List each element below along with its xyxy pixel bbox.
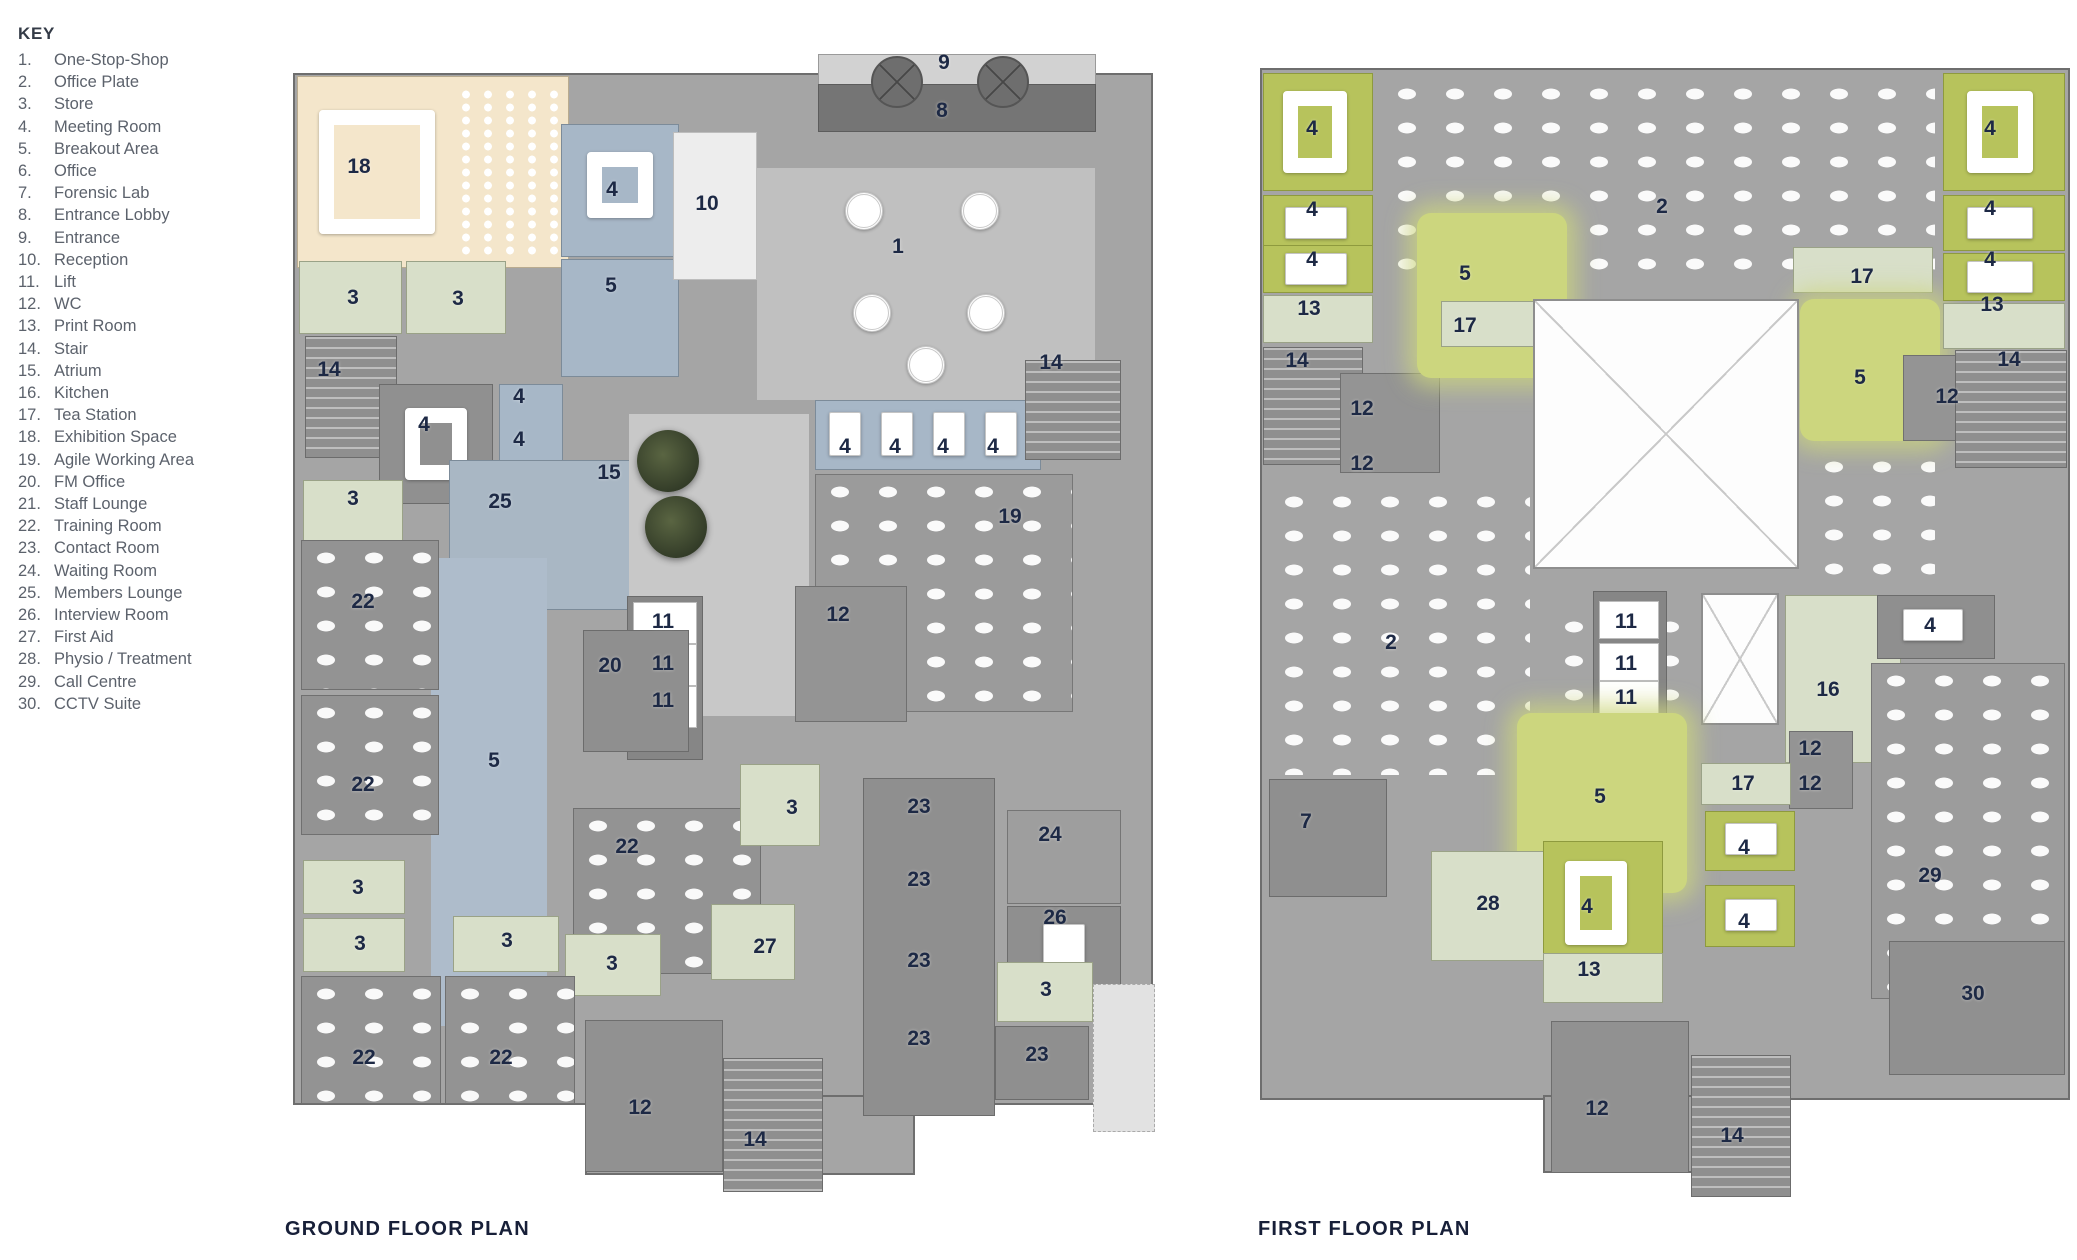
room-number-label: 12 bbox=[628, 1096, 651, 1120]
key-item-label: CCTV Suite bbox=[54, 693, 268, 715]
room-number-label: 12 bbox=[826, 603, 849, 627]
key-item-label: First Aid bbox=[54, 626, 268, 648]
room-number-label: 22 bbox=[351, 773, 374, 797]
room-number-label: 1 bbox=[892, 235, 904, 259]
room-number-label: 14 bbox=[1285, 349, 1308, 373]
room-number-label: 17 bbox=[1731, 772, 1754, 796]
room-number-label: 30 bbox=[1961, 982, 1984, 1006]
key-item-label: Office Plate bbox=[54, 71, 268, 93]
room-number-label: 9 bbox=[938, 51, 950, 75]
key-item: 17.Tea Station bbox=[18, 404, 268, 426]
room-number-label: 29 bbox=[1918, 864, 1941, 888]
key-item: 13.Print Room bbox=[18, 315, 268, 337]
key-item-label: Meeting Room bbox=[54, 116, 268, 138]
room-number-label: 4 bbox=[1306, 198, 1318, 222]
key-item-number: 6. bbox=[18, 160, 54, 182]
room-number-label: 11 bbox=[652, 610, 674, 634]
key-item: 25.Members Lounge bbox=[18, 582, 268, 604]
room-number-label: 8 bbox=[936, 99, 948, 123]
room-number-label: 4 bbox=[1924, 614, 1936, 638]
key-item-number: 16. bbox=[18, 382, 54, 404]
key-item: 15.Atrium bbox=[18, 360, 268, 382]
room-number-label: 23 bbox=[1025, 1043, 1048, 1067]
key-item-label: Kitchen bbox=[54, 382, 268, 404]
room-number-label: 15 bbox=[597, 461, 620, 485]
room-number-label: 5 bbox=[605, 274, 617, 298]
key-item-number: 24. bbox=[18, 560, 54, 582]
room-number-label: 3 bbox=[1040, 978, 1052, 1002]
key-item-number: 1. bbox=[18, 49, 54, 71]
key-item-label: Reception bbox=[54, 249, 268, 271]
first-floor-title: FIRST FLOOR PLAN bbox=[1258, 1218, 1471, 1241]
key-item-number: 7. bbox=[18, 182, 54, 204]
key-item: 9.Entrance bbox=[18, 227, 268, 249]
key-item: 21.Staff Lounge bbox=[18, 493, 268, 515]
room-number-label: 13 bbox=[1980, 293, 2003, 317]
room-number-label: 3 bbox=[501, 929, 513, 953]
key-item-number: 29. bbox=[18, 671, 54, 693]
room-number-label: 4 bbox=[1984, 248, 1996, 272]
room-number-label: 14 bbox=[1997, 348, 2020, 372]
key-item: 6.Office bbox=[18, 160, 268, 182]
ground-floor-title: GROUND FLOOR PLAN bbox=[285, 1218, 530, 1241]
room-number-label: 26 bbox=[1043, 906, 1066, 930]
key-item-number: 22. bbox=[18, 515, 54, 537]
key-item-label: Interview Room bbox=[54, 604, 268, 626]
key-item-number: 23. bbox=[18, 537, 54, 559]
key-item: 20.FM Office bbox=[18, 471, 268, 493]
key-item-number: 4. bbox=[18, 116, 54, 138]
key-item: 8.Entrance Lobby bbox=[18, 204, 268, 226]
room-number-label: 10 bbox=[695, 192, 718, 216]
key-item-number: 27. bbox=[18, 626, 54, 648]
room-number-label: 13 bbox=[1577, 958, 1600, 982]
room-number-label: 22 bbox=[352, 1046, 375, 1070]
ground-floor-plan: 9818410153314144444444153251922121111201… bbox=[285, 40, 1170, 1200]
room-number-label: 23 bbox=[907, 1027, 930, 1051]
key-item-number: 14. bbox=[18, 338, 54, 360]
key-item-number: 3. bbox=[18, 93, 54, 115]
key-item: 12.WC bbox=[18, 293, 268, 315]
key-item-label: Tea Station bbox=[54, 404, 268, 426]
room-number-label: 5 bbox=[1854, 366, 1866, 390]
key-item: 30.CCTV Suite bbox=[18, 693, 268, 715]
key-item-number: 8. bbox=[18, 204, 54, 226]
room-number-label: 17 bbox=[1850, 265, 1873, 289]
key-item: 1.One-Stop-Shop bbox=[18, 49, 268, 71]
room-number-label: 22 bbox=[615, 835, 638, 859]
key-item-label: Entrance bbox=[54, 227, 268, 249]
room-number-label: 11 bbox=[1615, 610, 1637, 634]
room-number-label: 4 bbox=[1738, 910, 1750, 934]
key-item-label: Stair bbox=[54, 338, 268, 360]
key-item: 16.Kitchen bbox=[18, 382, 268, 404]
key-item-label: Physio / Treatment bbox=[54, 648, 268, 670]
key-item-number: 20. bbox=[18, 471, 54, 493]
room-number-label: 4 bbox=[839, 435, 851, 459]
room-number-label: 23 bbox=[907, 949, 930, 973]
room-number-label: 7 bbox=[1300, 810, 1312, 834]
room-number-label: 12 bbox=[1350, 452, 1373, 476]
room-number-label: 4 bbox=[937, 435, 949, 459]
key-item-number: 12. bbox=[18, 293, 54, 315]
room-number-label: 24 bbox=[1038, 823, 1061, 847]
first-floor-plan: 4424444517131317141451212122111111164121… bbox=[1255, 55, 2072, 1190]
key-item: 11.Lift bbox=[18, 271, 268, 293]
room-number-label: 14 bbox=[1720, 1124, 1743, 1148]
room-number-label: 3 bbox=[786, 796, 798, 820]
first-label-layer: 4424444517131317141451212122111111164121… bbox=[1255, 55, 2072, 1190]
key-item: 3.Store bbox=[18, 93, 268, 115]
room-number-label: 4 bbox=[1581, 895, 1593, 919]
room-number-label: 2 bbox=[1385, 631, 1397, 655]
key-item: 19.Agile Working Area bbox=[18, 449, 268, 471]
room-number-label: 17 bbox=[1453, 314, 1476, 338]
key-item: 10.Reception bbox=[18, 249, 268, 271]
key-item-number: 30. bbox=[18, 693, 54, 715]
key-item-label: Print Room bbox=[54, 315, 268, 337]
key-item-number: 25. bbox=[18, 582, 54, 604]
room-number-label: 3 bbox=[354, 932, 366, 956]
room-number-label: 12 bbox=[1350, 397, 1373, 421]
room-number-label: 4 bbox=[987, 435, 999, 459]
room-number-label: 11 bbox=[652, 689, 674, 713]
key-item-label: Store bbox=[54, 93, 268, 115]
key-item-number: 10. bbox=[18, 249, 54, 271]
key-item: 5.Breakout Area bbox=[18, 138, 268, 160]
room-number-label: 13 bbox=[1297, 297, 1320, 321]
room-number-label: 14 bbox=[1039, 351, 1062, 375]
key-item-label: Agile Working Area bbox=[54, 449, 268, 471]
room-number-label: 25 bbox=[488, 490, 511, 514]
key-item-number: 18. bbox=[18, 426, 54, 448]
key-item-number: 15. bbox=[18, 360, 54, 382]
key-item: 29.Call Centre bbox=[18, 671, 268, 693]
key-item: 4.Meeting Room bbox=[18, 116, 268, 138]
room-number-label: 12 bbox=[1935, 385, 1958, 409]
key-item-number: 26. bbox=[18, 604, 54, 626]
room-number-label: 4 bbox=[1984, 117, 1996, 141]
key-item-label: Atrium bbox=[54, 360, 268, 382]
key-item-label: FM Office bbox=[54, 471, 268, 493]
room-number-label: 4 bbox=[418, 413, 430, 437]
room-number-label: 4 bbox=[1306, 117, 1318, 141]
room-number-label: 4 bbox=[513, 385, 525, 409]
room-number-label: 2 bbox=[1656, 195, 1668, 219]
room-number-label: 19 bbox=[998, 505, 1021, 529]
room-number-label: 23 bbox=[907, 795, 930, 819]
room-number-label: 18 bbox=[347, 155, 370, 179]
room-number-label: 11 bbox=[1615, 686, 1637, 710]
room-number-label: 22 bbox=[489, 1046, 512, 1070]
room-number-label: 3 bbox=[347, 487, 359, 511]
room-number-label: 14 bbox=[743, 1128, 766, 1152]
room-number-label: 4 bbox=[889, 435, 901, 459]
key-item-label: Entrance Lobby bbox=[54, 204, 268, 226]
key-item-label: Forensic Lab bbox=[54, 182, 268, 204]
key-item: 22.Training Room bbox=[18, 515, 268, 537]
key-item-label: Exhibition Space bbox=[54, 426, 268, 448]
key-item-label: Lift bbox=[54, 271, 268, 293]
key-item-label: Waiting Room bbox=[54, 560, 268, 582]
key-item-label: Call Centre bbox=[54, 671, 268, 693]
key-item: 2.Office Plate bbox=[18, 71, 268, 93]
room-number-label: 5 bbox=[1459, 262, 1471, 286]
key-item-label: Office bbox=[54, 160, 268, 182]
room-number-label: 4 bbox=[606, 178, 618, 202]
key-list: 1.One-Stop-Shop2.Office Plate3.Store4.Me… bbox=[18, 49, 268, 715]
key-item: 24.Waiting Room bbox=[18, 560, 268, 582]
room-number-label: 16 bbox=[1816, 678, 1839, 702]
key-item-label: Contact Room bbox=[54, 537, 268, 559]
key-item: 14.Stair bbox=[18, 338, 268, 360]
key-item-number: 28. bbox=[18, 648, 54, 670]
room-number-label: 23 bbox=[907, 868, 930, 892]
room-number-label: 3 bbox=[452, 287, 464, 311]
room-number-label: 5 bbox=[488, 749, 500, 773]
key-item: 27.First Aid bbox=[18, 626, 268, 648]
ground-label-layer: 9818410153314144444444153251922121111201… bbox=[285, 40, 1170, 1200]
key-title: KEY bbox=[18, 24, 268, 44]
room-number-label: 20 bbox=[598, 654, 621, 678]
room-number-label: 12 bbox=[1798, 737, 1821, 761]
room-number-label: 4 bbox=[1984, 197, 1996, 221]
room-number-label: 3 bbox=[606, 952, 618, 976]
key-item-label: Staff Lounge bbox=[54, 493, 268, 515]
room-number-label: 3 bbox=[347, 286, 359, 310]
key-item-number: 9. bbox=[18, 227, 54, 249]
room-number-label: 27 bbox=[753, 935, 776, 959]
key-item-label: WC bbox=[54, 293, 268, 315]
key-item-number: 2. bbox=[18, 71, 54, 93]
key-item-label: Members Lounge bbox=[54, 582, 268, 604]
room-number-label: 11 bbox=[1615, 652, 1637, 676]
room-number-label: 28 bbox=[1476, 892, 1499, 916]
room-number-label: 4 bbox=[1306, 248, 1318, 272]
room-number-label: 11 bbox=[652, 652, 674, 676]
key-item-label: Training Room bbox=[54, 515, 268, 537]
key-item-number: 11. bbox=[18, 271, 54, 293]
key-item-label: Breakout Area bbox=[54, 138, 268, 160]
room-number-label: 14 bbox=[317, 358, 340, 382]
room-number-label: 12 bbox=[1585, 1097, 1608, 1121]
key-item-label: One-Stop-Shop bbox=[54, 49, 268, 71]
room-number-label: 4 bbox=[1738, 836, 1750, 860]
room-number-label: 3 bbox=[352, 876, 364, 900]
key-item: 26.Interview Room bbox=[18, 604, 268, 626]
key-legend: KEY 1.One-Stop-Shop2.Office Plate3.Store… bbox=[18, 24, 268, 715]
key-item: 23.Contact Room bbox=[18, 537, 268, 559]
key-item-number: 21. bbox=[18, 493, 54, 515]
room-number-label: 12 bbox=[1798, 772, 1821, 796]
key-item-number: 13. bbox=[18, 315, 54, 337]
key-item-number: 5. bbox=[18, 138, 54, 160]
key-item-number: 17. bbox=[18, 404, 54, 426]
room-number-label: 5 bbox=[1594, 785, 1606, 809]
key-item: 18.Exhibition Space bbox=[18, 426, 268, 448]
room-number-label: 22 bbox=[351, 590, 374, 614]
key-item: 7.Forensic Lab bbox=[18, 182, 268, 204]
key-item-number: 19. bbox=[18, 449, 54, 471]
room-number-label: 4 bbox=[513, 428, 525, 452]
key-item: 28.Physio / Treatment bbox=[18, 648, 268, 670]
